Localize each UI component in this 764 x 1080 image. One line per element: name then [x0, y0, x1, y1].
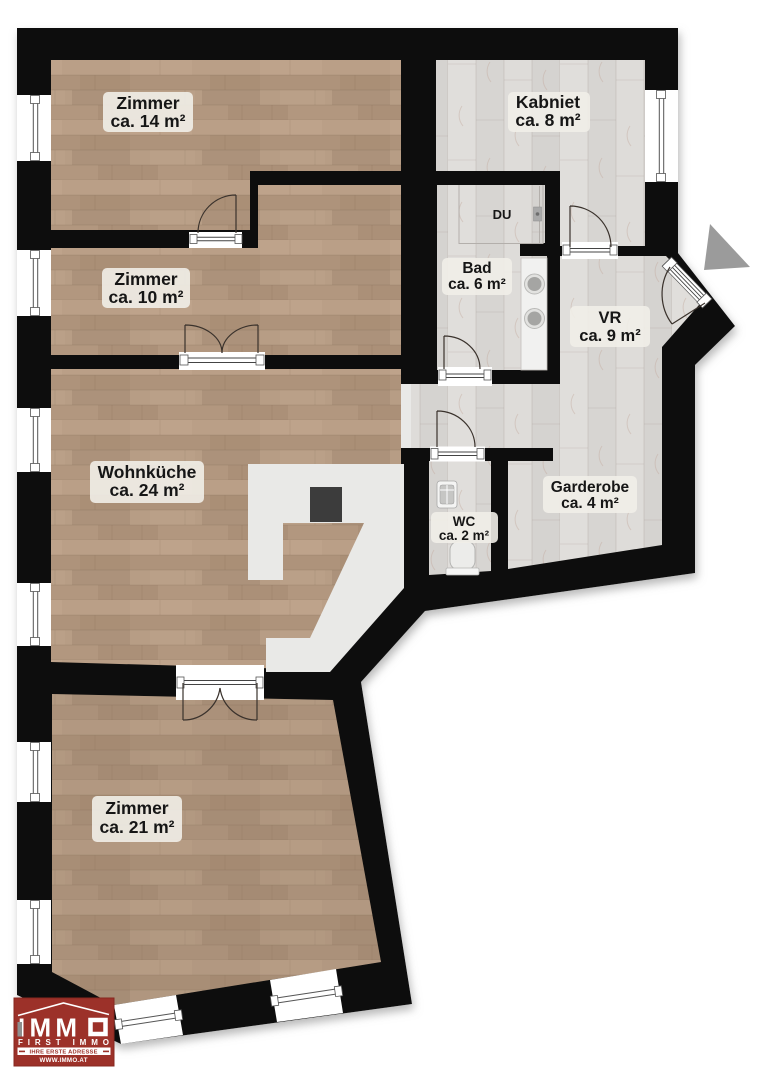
svg-text:Zimmer: Zimmer	[116, 93, 179, 113]
svg-text:Kabniet: Kabniet	[516, 92, 580, 112]
svg-text:Zimmer: Zimmer	[114, 269, 177, 289]
svg-text:ca. 8 m²: ca. 8 m²	[515, 110, 580, 130]
svg-text:ca. 4 m²: ca. 4 m²	[561, 495, 619, 512]
svg-text:Zimmer: Zimmer	[105, 798, 168, 818]
svg-text:VR: VR	[599, 309, 622, 327]
svg-text:ca. 6 m²: ca. 6 m²	[448, 276, 506, 293]
svg-text:ca. 2 m²: ca. 2 m²	[439, 528, 490, 543]
svg-text:IHRE ERSTE ADRESSE: IHRE ERSTE ADRESSE	[30, 1050, 98, 1056]
svg-text:ca. 10 m²: ca. 10 m²	[109, 287, 184, 307]
svg-text:Garderobe: Garderobe	[551, 479, 630, 496]
svg-text:ca. 24 m²: ca. 24 m²	[110, 480, 185, 500]
svg-text:ca. 14 m²: ca. 14 m²	[111, 111, 186, 131]
svg-text:ca. 21 m²: ca. 21 m²	[100, 817, 175, 837]
svg-text:WWW.IMMO.AT: WWW.IMMO.AT	[40, 1057, 88, 1064]
svg-text:WC: WC	[453, 514, 476, 529]
svg-text:Wohnküche: Wohnküche	[98, 462, 197, 482]
svg-text:ca. 9 m²: ca. 9 m²	[579, 327, 641, 345]
svg-text:DU: DU	[493, 207, 512, 222]
svg-text:Bad: Bad	[462, 260, 491, 277]
